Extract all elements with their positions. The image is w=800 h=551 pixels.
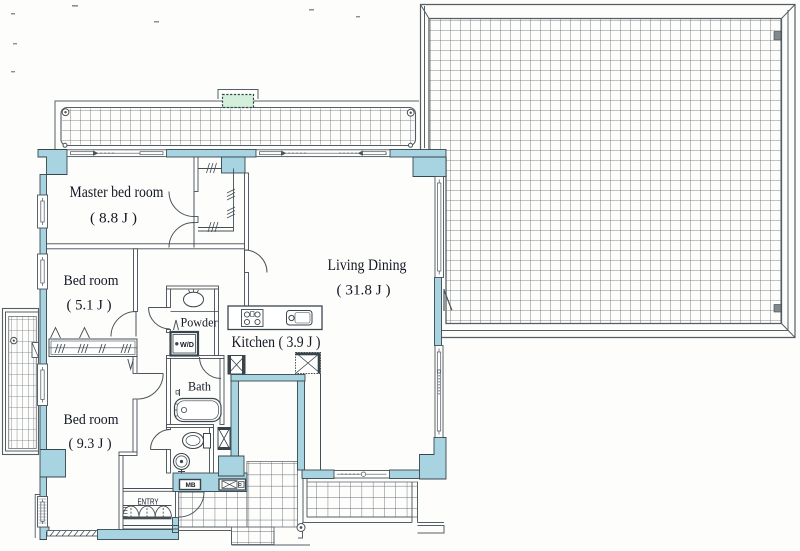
svg-text:Kitchen ( 3.9 J ): Kitchen ( 3.9 J ) bbox=[232, 334, 321, 351]
svg-text:Bed room: Bed room bbox=[64, 412, 119, 428]
svg-text:Master bed room: Master bed room bbox=[70, 184, 164, 201]
svg-text:( 31.8 J ): ( 31.8 J ) bbox=[337, 283, 391, 299]
svg-text:Bath: Bath bbox=[188, 380, 212, 394]
svg-text:( 8.8 J ): ( 8.8 J ) bbox=[90, 211, 137, 227]
svg-text:Powder: Powder bbox=[181, 316, 219, 330]
svg-text:Bed room: Bed room bbox=[64, 273, 119, 289]
svg-text:W/D: W/D bbox=[180, 340, 194, 349]
svg-text:ENTRY: ENTRY bbox=[138, 497, 159, 507]
svg-text:MB: MB bbox=[186, 482, 196, 489]
svg-text:( 5.1 J ): ( 5.1 J ) bbox=[67, 298, 112, 314]
svg-text:( 9.3 J ): ( 9.3 J ) bbox=[69, 436, 112, 452]
svg-text:Living Dining: Living Dining bbox=[328, 257, 407, 274]
